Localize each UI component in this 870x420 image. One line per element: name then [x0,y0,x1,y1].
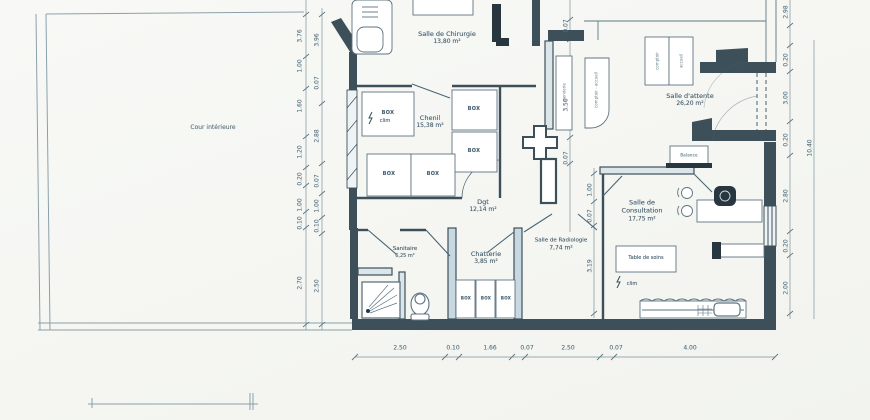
room-label-chatterie: Chatterie 3,85 m² [457,250,515,266]
box-label: BOX [468,106,481,113]
clim-label: clim [627,281,637,288]
dim-label: 0.07 [314,174,321,187]
floorplan-drawing [0,0,870,420]
dim-label: 1.66 [483,345,496,352]
dim-label: 0.07 [314,76,321,89]
dim-label: 0.20 [783,133,790,146]
desk-panel-label: accueil [679,54,684,68]
dim-label: 2.88 [314,129,321,142]
dim-label: 0.10 [297,216,304,229]
radiator [712,242,764,259]
dim-label: 2.50 [561,345,574,352]
dim-label: 1.20 [297,145,304,158]
dim-label: 1.00 [297,198,304,211]
clim-label: clim [380,118,390,125]
consultation-desk [678,186,762,222]
dim-label: 0.20 [783,53,790,66]
room-label-consultation: Salle de Consultation 17,75 m² [614,199,670,224]
window-right [764,206,776,246]
dim-label: 1.60 [297,99,304,112]
box-label: BOX [427,171,440,178]
dim-label: 3.19 [587,259,594,272]
box-label: BOX [481,295,491,300]
room-area: 26,20 m² [650,100,730,108]
dim-label: 4.00 [683,345,696,352]
balance-label: Balance [680,152,697,157]
box-label: BOX [501,295,511,300]
wc-icon [411,293,429,320]
dim-label: 2.50 [393,345,406,352]
box-label: BOX [382,110,395,117]
dim-label: 2.00 [783,281,790,294]
reception-desk [645,37,693,85]
dim-label: 2.80 [783,189,790,202]
dim-label: 1.00 [314,199,321,212]
room-label-attente: Salle d'attente 26,20 m² [650,92,730,108]
room-label-chirurgie: Salle de Chirurgie 13,80 m² [402,30,492,46]
dim-total-label: 10.40 [807,139,814,156]
dim-label: 0.07 [563,19,570,32]
surgery-table [413,0,473,15]
cabinet-label: comptoir - accueil [594,72,599,108]
dim-label: 2.98 [783,5,790,18]
dim-label: 0.10 [446,345,459,352]
room-label-chenil: Chenil 15,38 m² [400,114,460,130]
dim-label: 0.10 [314,219,321,232]
dim-label: 0.07 [520,345,533,352]
room-area: 15,38 m² [400,122,460,130]
room-name: Salle de Consultation [614,199,670,216]
room-label-sanitaire: Sanitaire 6,25 m² [380,246,430,260]
dim-label: 0.07 [587,209,594,222]
floor-plan-scan: Cour intérieure Salle de Chirurgie 13,80… [0,0,870,420]
room-label-dgt: Dgt 12,14 m² [453,198,513,214]
room-area: 13,80 m² [402,38,492,46]
dim-label: 0.07 [609,345,622,352]
dim-label: 1.00 [297,59,304,72]
courtyard-outline [36,12,352,410]
dim-label: 3.00 [783,91,790,104]
dim-label: 0.20 [297,172,304,185]
courtyard-label: Cour intérieure [190,124,235,132]
desk-panel-label: comptoir [655,52,660,70]
dim-label: 0.20 [783,239,790,252]
room-area: 3,85 m² [457,258,515,266]
surgery-equipment [492,4,509,46]
room-area: 6,25 m² [380,253,430,260]
counter-sink [640,299,746,318]
room-label-radiologie: Salle de Radiologie 7,74 m² [528,238,594,253]
furniture [352,0,764,320]
dim-label: 2.50 [314,279,321,292]
box-label: BOX [461,295,471,300]
room-area: 17,75 m² [614,216,670,224]
surgery-sink-unit [352,0,392,54]
room-area: 7,74 m² [528,245,594,253]
dim-label: 1.00 [587,183,594,196]
window-chenil [347,90,357,188]
treatment-table-label: Table de soins [618,255,674,262]
box-label: BOX [383,171,396,178]
dim-label: 3.76 [297,29,304,42]
dim-label: 3.96 [314,33,321,46]
duct-column [523,126,557,203]
dim-label: 3.50 [563,98,570,111]
shower-icon [362,282,400,318]
room-area: 12,14 m² [453,206,513,214]
dim-label: 2.70 [297,276,304,289]
box-label: BOX [468,148,481,155]
dim-label: 0.07 [563,151,570,164]
